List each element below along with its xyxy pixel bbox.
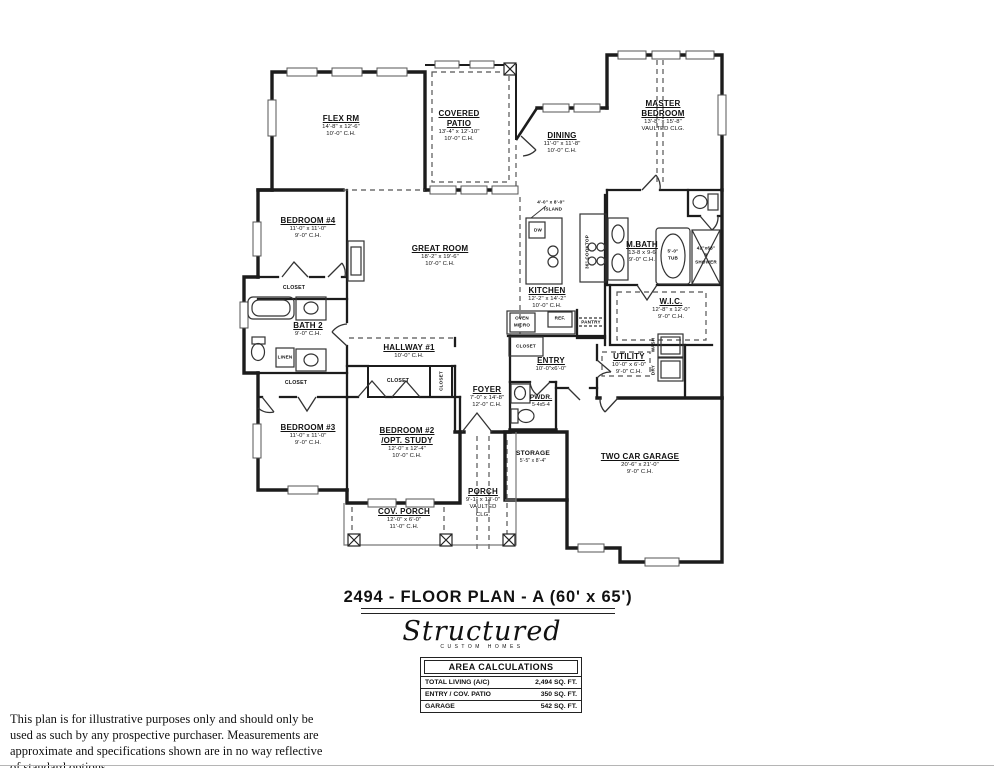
room-label-kitchen: KITCHEN 12'-2" x 14'-2" 10'-0" C.H. (528, 286, 566, 311)
room-name: UTILITY (612, 352, 646, 362)
tub-size-label: 5'-0" (668, 249, 679, 254)
closet-label: CLOSET (283, 285, 305, 291)
room-dims: 12'-2" x 14'-2" (528, 296, 566, 303)
room-name: PWDR. (530, 394, 552, 402)
room-name: PATIO (438, 119, 479, 129)
room-ch: 9'-0" C.H. (601, 469, 679, 476)
row-label: TOTAL LIVING (A/C) (425, 679, 490, 686)
disclaimer-text: This plan is for illustrative purposes o… (10, 711, 328, 768)
room-name: HALLWAY #1 (383, 343, 434, 353)
room-label-cov-porch: COV. PORCH 12'-0" x 6'-0" 11'-0" C.H. (378, 507, 430, 532)
room-dims: 7'-0" x 14'-8" (470, 395, 504, 402)
dryer-label: DRY (651, 365, 656, 375)
mbath-vanity (608, 218, 628, 280)
area-calculations-table: AREA CALCULATIONS TOTAL LIVING (A/C) 2,4… (420, 657, 582, 713)
shower-size-label: 42"x68" (697, 246, 716, 251)
closet-label: CLOSET (285, 380, 307, 386)
room-name: MASTER (641, 99, 684, 109)
room-label-entry: ENTRY 10'-0"x6'-0" (536, 356, 567, 373)
room-name: FLEX RM (322, 114, 360, 124)
bottom-divider (0, 765, 994, 766)
cooktop-label: 36" COOKTOP (585, 235, 590, 269)
logo-script-text: Structured (402, 616, 561, 647)
room-label-dining: DINING 11'-0" x 11'-8" 10'-0" C.H. (544, 131, 581, 156)
room-name: M.BATH (626, 240, 658, 250)
room-ch: 10'-0" C.H. (438, 136, 479, 143)
room-ch: CLG. (466, 512, 500, 519)
room-name: BEDROOM #3 (281, 423, 336, 433)
room-dims: 14'-8" x 12'-6" (322, 124, 360, 131)
room-dims: 20'-6" x 21'-0" (601, 462, 679, 469)
room-name: STORAGE (516, 450, 550, 458)
room-name: DINING (544, 131, 581, 141)
table-row: GARAGE 542 SQ. FT. (421, 700, 581, 712)
mbath-toilet (693, 196, 707, 209)
title-underline (361, 608, 615, 614)
row-value: 2,494 SQ. FT. (535, 679, 577, 686)
room-name: BEDROOM #2 (380, 426, 435, 436)
room-name: ENTRY (536, 356, 567, 366)
room-dims: 12'-0" x 12'-4" (380, 446, 435, 453)
room-label-bedroom2: BEDROOM #2 /OPT. STUDY 12'-0" x 12'-4" 1… (380, 426, 435, 461)
room-dims: 10'-0" x 6'-0" (612, 362, 646, 369)
floor-plan-sheet: FLEX RM 14'-8" x 12'-6" 10'-0" C.H. COVE… (0, 0, 994, 768)
room-ch: 9'-0" C.H. (652, 314, 690, 321)
room-label-foyer: FOYER 7'-0" x 14'-8" 12'-0" C.H. (470, 385, 504, 410)
pwdr-toilet (511, 409, 518, 423)
builder-logo: Structured CUSTOM HOMES (402, 616, 561, 650)
pantry-label: PANTRY (581, 320, 601, 325)
room-label-garage: TWO CAR GARAGE 20'-6" x 21'-0" 9'-0" C.H… (601, 452, 679, 477)
room-ch: 10'-0" C.H. (380, 453, 435, 460)
room-ch: 10'-0" C.H. (528, 303, 566, 310)
room-label-bedroom3: BEDROOM #3 11'-0" x 11'-0" 9'-0" C.H. (281, 423, 336, 448)
room-name: BEDROOM (641, 109, 684, 119)
room-dims: 11'-0" x 11'-8" (544, 141, 581, 148)
room-dims: 11'-0" x 11'-0" (281, 226, 336, 233)
closet-label: CLOSET (439, 371, 444, 391)
room-name: W.I.C. (652, 297, 690, 307)
floor-plan-drawing (0, 0, 994, 768)
oven-label: OVEN (515, 316, 529, 321)
dishwasher-label: DW (534, 228, 542, 233)
row-value: 542 SQ. FT. (541, 703, 577, 710)
room-name: TWO CAR GARAGE (601, 452, 679, 462)
room-label-master-bedroom: MASTER BEDROOM 13'-8" x 15'-8" VAULTED C… (641, 99, 684, 134)
room-ch: 9'-0" C.H. (281, 440, 336, 447)
room-label-great-room: GREAT ROOM 18'-2" x 19'-6" 10'-0" C.H. (412, 244, 469, 269)
room-dims: 5'-5" x 8'-4" (516, 458, 550, 464)
room-dims: 11'-0" x 11'-0" (281, 433, 336, 440)
room-dims: 10'-0"x6'-0" (536, 366, 567, 373)
room-dims: 13'-8" x 15'-8" (641, 119, 684, 126)
table-row: ENTRY / COV. PATIO 350 SQ. FT. (421, 688, 581, 700)
room-dims: 13-8 x 9-6 (626, 250, 658, 257)
room-dims: 13'-4" x 12'-10" (438, 129, 479, 136)
shower-r-label: R (704, 253, 708, 258)
washer-label: WASH (651, 338, 656, 353)
row-label: ENTRY / COV. PATIO (425, 691, 491, 698)
room-name: FOYER (470, 385, 504, 395)
island-label: ISLAND (544, 207, 562, 212)
plan-title: 2494 - FLOOR PLAN - A (60' x 65') (344, 588, 633, 607)
room-ch: 9'-0" C.H. (293, 331, 323, 338)
room-name: GREAT ROOM (412, 244, 469, 254)
room-ch: 10'-0" C.H. (322, 131, 360, 138)
room-label-storage: STORAGE 5'-5" x 8'-4" (516, 450, 550, 464)
room-label-bath2: BATH 2 9'-0" C.H. (293, 321, 323, 338)
room-name: KITCHEN (528, 286, 566, 296)
room-ch: 10'-0" C.H. (383, 353, 434, 360)
room-ch: VAULTED (466, 504, 500, 511)
room-ch: 10'-0" C.H. (412, 261, 469, 268)
room-label-covered-patio: COVERED PATIO 13'-4" x 12'-10" 10'-0" C.… (438, 109, 479, 144)
area-table-header: AREA CALCULATIONS (424, 660, 578, 674)
table-row: TOTAL LIVING (A/C) 2,494 SQ. FT. (421, 676, 581, 688)
room-label-bedroom4: BEDROOM #4 11'-0" x 11'-0" 9'-0" C.H. (281, 216, 336, 241)
room-dims: 12'-8" x 12'-0" (652, 307, 690, 314)
room-ch: 12'-0" C.H. (470, 402, 504, 409)
room-name: PORCH (466, 487, 500, 497)
room-ch: 9'-0" C.H. (612, 369, 646, 376)
bath2-vanity (296, 297, 326, 320)
room-dims: 9'-1" x 13'-0" (466, 497, 500, 504)
kitchen-island (526, 218, 562, 284)
refrigerator-label: REF. (555, 316, 566, 321)
shower-label: SHOWER (695, 260, 717, 265)
micro-label: MICRO (514, 323, 530, 328)
row-value: 350 SQ. FT. (541, 691, 577, 698)
room-label-pwdr: PWDR. 5-4x5-4 (530, 394, 552, 408)
room-ch: 10'-0" C.H. (544, 148, 581, 155)
bath2-vanity2 (296, 349, 326, 371)
linen-label: LINEN (278, 355, 293, 360)
room-dims: 12'-0" x 6'-0" (378, 517, 430, 524)
room-ch: VAULTED CLG. (641, 126, 684, 133)
row-label: GARAGE (425, 703, 455, 710)
room-name: BEDROOM #4 (281, 216, 336, 226)
room-dims: 18'-2" x 19'-6" (412, 254, 469, 261)
room-name: BATH 2 (293, 321, 323, 331)
closet-label: CLOSET (387, 378, 409, 384)
room-label-porch: PORCH 9'-1" x 13'-0" VAULTED CLG. (466, 487, 500, 519)
tub-label: TUB (668, 256, 678, 261)
closet-label: CLOSET (516, 344, 536, 349)
island-dims-label: 4'-0" x 8'-0" (537, 200, 565, 205)
room-label-hallway1: HALLWAY #1 10'-0" C.H. (383, 343, 434, 360)
room-dims: 5-4x5-4 (530, 402, 552, 408)
room-label-flex: FLEX RM 14'-8" x 12'-6" 10'-0" C.H. (322, 114, 360, 139)
room-ch: 9'-0" C.H. (626, 257, 658, 264)
room-name: COV. PORCH (378, 507, 430, 517)
room-label-utility: UTILITY 10'-0" x 6'-0" 9'-0" C.H. (612, 352, 646, 377)
room-label-mbath: M.BATH 13-8 x 9-6 9'-0" C.H. (626, 240, 658, 265)
room-label-wic: W.I.C. 12'-8" x 12'-0" 9'-0" C.H. (652, 297, 690, 322)
room-ch: 9'-0" C.H. (281, 233, 336, 240)
room-ch: 11'-0" C.H. (378, 524, 430, 531)
room-name: /OPT. STUDY (380, 436, 435, 446)
room-name: COVERED (438, 109, 479, 119)
